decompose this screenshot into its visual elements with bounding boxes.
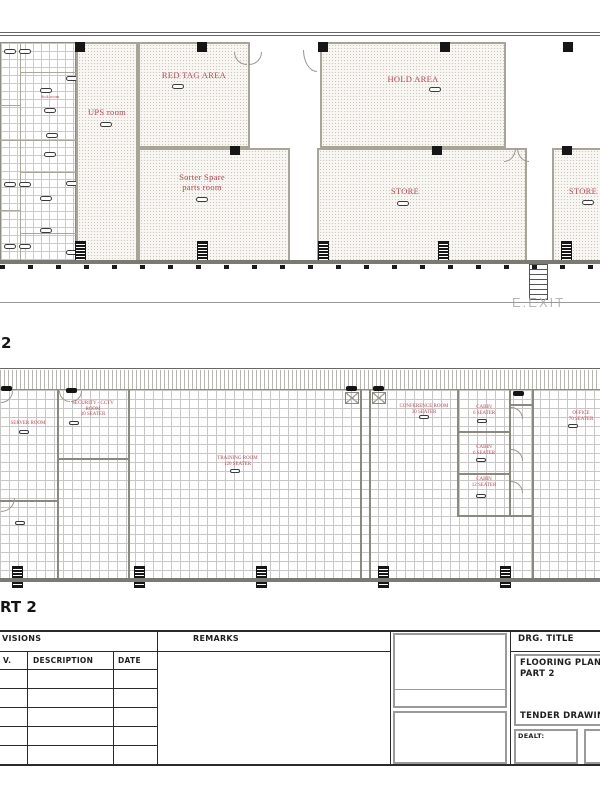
section-divider-line	[0, 302, 600, 303]
wall	[457, 431, 511, 433]
shutter-symbol	[256, 566, 267, 588]
wall	[57, 458, 129, 460]
fixture-symbol	[19, 182, 31, 187]
wall	[457, 473, 511, 475]
label-line: Sorter Spare	[137, 172, 267, 182]
label-line: 120 SEATER	[200, 462, 275, 468]
wall	[360, 390, 362, 578]
room-label-cabin-2: CABIN 6 SEATER	[460, 445, 508, 456]
drawing-stage-label: TENDER DRAWING	[520, 711, 600, 721]
column-marker	[197, 42, 207, 52]
outer-wall-line	[0, 32, 600, 33]
side-box	[584, 729, 600, 764]
floor-plan-1: Sick room UPS room RED TAG AREA HOLD ARE…	[0, 0, 600, 360]
partition-wall	[20, 233, 76, 234]
partition-wall	[20, 172, 76, 173]
fixture-symbol	[4, 244, 16, 249]
door-leaf-symbol	[345, 392, 359, 404]
logo-box-lower	[393, 711, 507, 764]
equipment-symbol	[476, 494, 486, 498]
table-line	[113, 651, 114, 764]
label-line: 70 SEATER	[556, 417, 600, 423]
room-label-training: TRAINING ROOM 120 SEATER	[200, 456, 275, 467]
column-marker	[563, 42, 573, 52]
washroom-area	[0, 42, 76, 262]
room-store-1	[317, 148, 527, 262]
table-line	[0, 707, 157, 708]
fixture-symbol	[19, 244, 31, 249]
partition-wall	[20, 42, 21, 262]
equipment-symbol	[582, 200, 594, 205]
label-line: 30 SEATER	[60, 412, 126, 418]
col-header-date: DATE	[118, 656, 141, 665]
table-line	[0, 688, 157, 689]
equipment-symbol	[19, 430, 29, 434]
room-store-2	[552, 148, 600, 262]
logo-box-divider	[395, 689, 505, 690]
bottom-wall	[0, 260, 600, 264]
partition-wall	[0, 140, 20, 141]
equipment-symbol	[100, 122, 112, 127]
drg-title-label: DRG. TITLE	[518, 634, 574, 644]
col-header-rev: V.	[3, 656, 11, 665]
room-label-hold-area: HOLD AREA	[320, 74, 506, 84]
fixture-symbol	[44, 108, 56, 113]
fixture-symbol	[44, 152, 56, 157]
room-label-store-1: STORE	[340, 186, 470, 196]
column-marker	[230, 146, 240, 155]
dealt-label: DEALT:	[518, 732, 544, 740]
drawing-sheet: Sick room UPS room RED TAG AREA HOLD ARE…	[0, 0, 600, 800]
wall	[532, 390, 534, 578]
title-block: VISIONS V. DESCRIPTION DATE REMARKS DRG.…	[0, 620, 600, 800]
fixture-symbol	[40, 88, 52, 93]
door-arc	[303, 50, 317, 72]
door-head-symbol	[513, 391, 524, 396]
equipment-symbol	[476, 458, 486, 462]
top-hatch-strip	[0, 370, 600, 390]
partition-wall	[0, 105, 20, 106]
drawing-title-line2: PART 2	[520, 669, 555, 679]
fixture-symbol	[4, 182, 16, 187]
floor-plan-2: SERVER ROOM SECURITY - CCTV ROOM 30 SEAT…	[0, 360, 600, 620]
room-label-red-tag-area: RED TAG AREA	[138, 70, 250, 80]
equipment-symbol	[172, 84, 184, 89]
label-line: 6 SEATER	[460, 451, 508, 457]
room-hold-area	[320, 42, 506, 148]
room-label-cabin-3: CABIN 12 SEATER	[460, 477, 508, 488]
equipment-symbol	[69, 421, 79, 425]
wall	[457, 515, 534, 517]
door-arc	[249, 52, 262, 65]
bottom-wall	[0, 578, 600, 582]
wall	[57, 390, 59, 578]
partition-wall	[0, 210, 20, 211]
label-line: SERVER ROOM	[0, 421, 56, 427]
door-head-symbol	[373, 386, 384, 391]
room-label-server: SERVER ROOM	[0, 421, 56, 427]
column-marker	[562, 146, 572, 155]
label-line: parts room	[137, 182, 267, 192]
table-line	[0, 726, 157, 727]
wall	[128, 390, 130, 578]
drawing-title-line1: FLOORING PLAN	[520, 658, 600, 668]
room-label-sorter-spare: Sorter Spare parts room	[137, 172, 267, 192]
table-line	[0, 745, 157, 746]
fixture-symbol	[46, 133, 58, 138]
table-line	[157, 630, 158, 764]
fixture-symbol	[19, 49, 31, 54]
room-label-cabin-1: CABIN 6 SEATER	[460, 405, 508, 416]
revisions-header: VISIONS	[2, 634, 41, 643]
fixture-symbol	[4, 49, 16, 54]
equipment-symbol	[419, 415, 429, 419]
partition-wall	[20, 140, 76, 141]
outer-wall-line	[0, 35, 600, 36]
column-marker	[75, 42, 85, 52]
label-line: 6 SEATER	[460, 411, 508, 417]
equipment-symbol	[230, 469, 240, 473]
shutter-symbol	[12, 566, 23, 588]
door-head-symbol	[346, 386, 357, 391]
equipment-symbol	[429, 87, 441, 92]
room-sorter-spare	[138, 148, 290, 262]
room-label-sick: Sick room	[36, 94, 64, 99]
shutter-symbol	[134, 566, 145, 588]
equipment-symbol	[397, 201, 409, 206]
wall-ticks	[0, 265, 600, 269]
equipment-symbol	[196, 197, 208, 202]
table-line	[0, 669, 157, 670]
wall	[509, 404, 534, 406]
room-label-conference: CONFERENCE ROOM 30 SEATER	[388, 404, 460, 415]
fixture-symbol	[40, 196, 52, 201]
logo-box-upper	[393, 633, 507, 708]
table-line	[510, 651, 600, 652]
outer-wall-line	[0, 368, 600, 369]
label-line: 12 SEATER	[460, 483, 508, 489]
col-header-description: DESCRIPTION	[33, 656, 93, 665]
room-ups	[76, 42, 138, 262]
column-marker	[440, 42, 450, 52]
shutter-symbol	[378, 566, 389, 588]
remarks-header: REMARKS	[193, 634, 239, 643]
table-line	[0, 651, 390, 652]
equipment-symbol	[477, 419, 487, 423]
equipment-symbol	[568, 424, 578, 428]
column-marker	[432, 146, 442, 155]
shutter-symbol	[500, 566, 511, 588]
wall	[369, 390, 371, 578]
column-marker	[318, 42, 328, 52]
equipment-symbol	[15, 521, 25, 525]
room-red-tag-area	[138, 42, 250, 148]
table-line	[27, 651, 28, 764]
table-line	[390, 630, 391, 764]
partition-wall	[20, 72, 76, 73]
door-leaf-symbol	[372, 392, 386, 404]
room-label-store-2: STORE	[553, 186, 600, 196]
title-block-border	[0, 764, 600, 766]
room-label-office: OFFICE 70 SEATER	[556, 411, 600, 422]
room-label-security: SECURITY - CCTV ROOM 30 SEATER	[60, 401, 126, 418]
fixture-symbol	[40, 228, 52, 233]
plan1-caption: 2	[1, 334, 11, 352]
room-label-ups: UPS room	[76, 107, 138, 117]
plan2-caption: RT 2	[0, 598, 37, 616]
